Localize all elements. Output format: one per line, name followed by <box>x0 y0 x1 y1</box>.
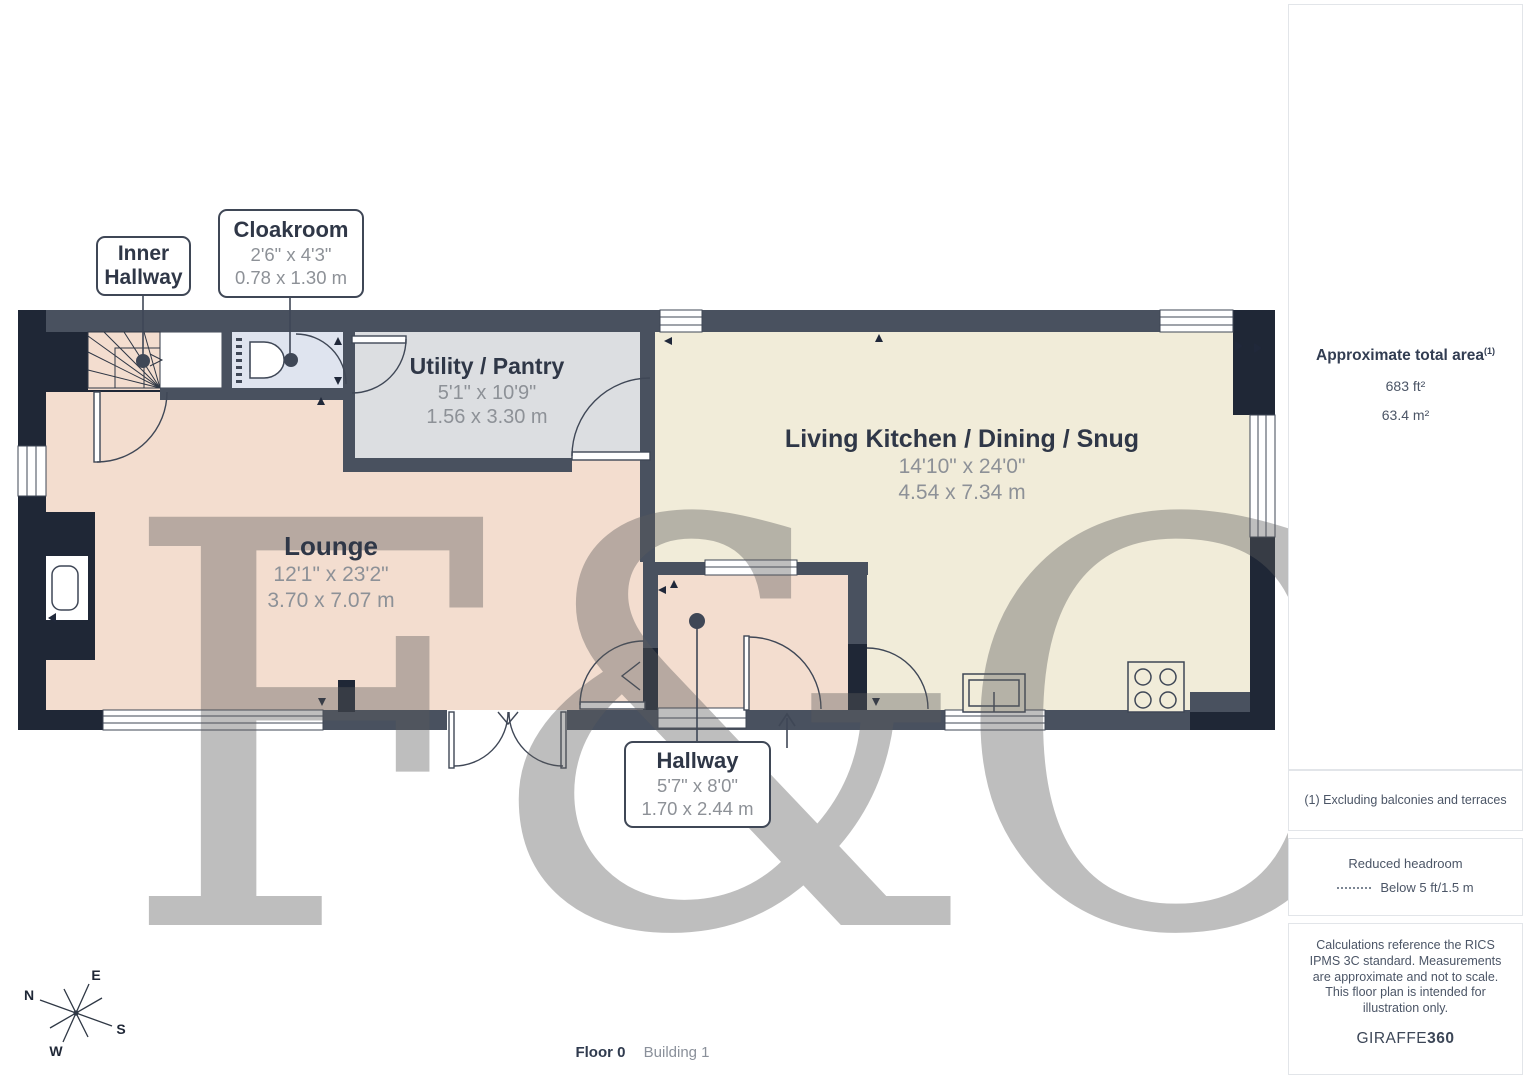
room-name: Living Kitchen / Dining / Snug <box>772 424 1152 454</box>
reduced-headroom-line-icon <box>1337 887 1371 889</box>
room-label-hallway: Hallway 5'7" x 8'0" 1.70 x 2.44 m <box>624 741 771 828</box>
room-dims-metric: 1.56 x 3.30 m <box>357 405 617 430</box>
room-dims-imperial: 5'1" x 10'9" <box>357 381 617 406</box>
room-label-utility: Utility / Pantry 5'1" x 10'9" 1.56 x 3.3… <box>357 353 617 430</box>
floorplan-page: F&C Inner Hallway Cloakroom 2'6" x 4'3" … <box>0 0 1527 1080</box>
room-dims-imperial: 12'1" x 23'2" <box>221 562 441 588</box>
sidebar-footnote-panel: (1) Excluding balconies and terraces <box>1288 770 1523 831</box>
headroom-title: Reduced headroom <box>1289 856 1522 871</box>
sidebar-headroom-panel: Reduced headroom Below 5 ft/1.5 m <box>1288 838 1523 916</box>
leader-dot <box>136 354 150 368</box>
room-dims-imperial: 2'6" x 4'3" <box>220 244 362 267</box>
room-dims-metric: 3.70 x 7.07 m <box>221 588 441 614</box>
room-name: Lounge <box>221 531 441 562</box>
room-dims-imperial: 5'7" x 8'0" <box>626 775 769 798</box>
headroom-value: Below 5 ft/1.5 m <box>1380 880 1473 895</box>
compass-e: E <box>91 967 100 983</box>
room-dims-metric: 4.54 x 7.34 m <box>772 480 1152 506</box>
sidebar-area-panel: Approximate total area(1) 683 ft² 63.4 m… <box>1288 4 1523 770</box>
leader-dot <box>689 613 705 629</box>
compass-n: N <box>24 987 34 1003</box>
sidebar-disclaimer-panel: Calculations reference the RICS IPMS 3C … <box>1288 923 1523 1075</box>
room-name: Inner Hallway <box>98 242 189 290</box>
room-dims-metric: 0.78 x 1.30 m <box>220 267 362 290</box>
area-title-text: Approximate total area <box>1316 347 1484 364</box>
area-imperial: 683 ft² <box>1289 378 1522 394</box>
area-title-footnote-ref: (1) <box>1484 346 1495 356</box>
room-dims-metric: 1.70 x 2.44 m <box>626 798 769 821</box>
disclaimer-text: Calculations reference the RICS IPMS 3C … <box>1308 938 1504 1017</box>
room-name: Cloakroom <box>220 217 362 243</box>
room-label-cloakroom: Cloakroom 2'6" x 4'3" 0.78 x 1.30 m <box>218 209 364 298</box>
leader-dot <box>284 353 298 367</box>
room-label-inner-hallway: Inner Hallway <box>96 236 191 296</box>
building-label[interactable]: Building 1 <box>644 1044 710 1061</box>
room-label-lounge: Lounge 12'1" x 23'2" 3.70 x 7.07 m <box>221 531 441 614</box>
footnote-text: (1) Excluding balconies and terraces <box>1289 793 1522 807</box>
room-name: Utility / Pantry <box>357 353 617 381</box>
floor-label[interactable]: Floor 0 <box>575 1044 625 1061</box>
brand-suffix: 360 <box>1427 1030 1454 1047</box>
floor-selector-bar: Floor 0 Building 1 <box>0 1044 1285 1061</box>
area-title: Approximate total area(1) <box>1289 346 1522 365</box>
brand-name: GIRAFFE <box>1356 1030 1427 1047</box>
brand-logo: GIRAFFE360 <box>1289 1030 1522 1048</box>
area-metric: 63.4 m² <box>1289 407 1522 423</box>
compass-s: S <box>116 1021 125 1037</box>
room-dims-imperial: 14'10" x 24'0" <box>772 454 1152 480</box>
room-label-living-kitchen: Living Kitchen / Dining / Snug 14'10" x … <box>772 424 1152 506</box>
room-name: Hallway <box>626 748 769 774</box>
